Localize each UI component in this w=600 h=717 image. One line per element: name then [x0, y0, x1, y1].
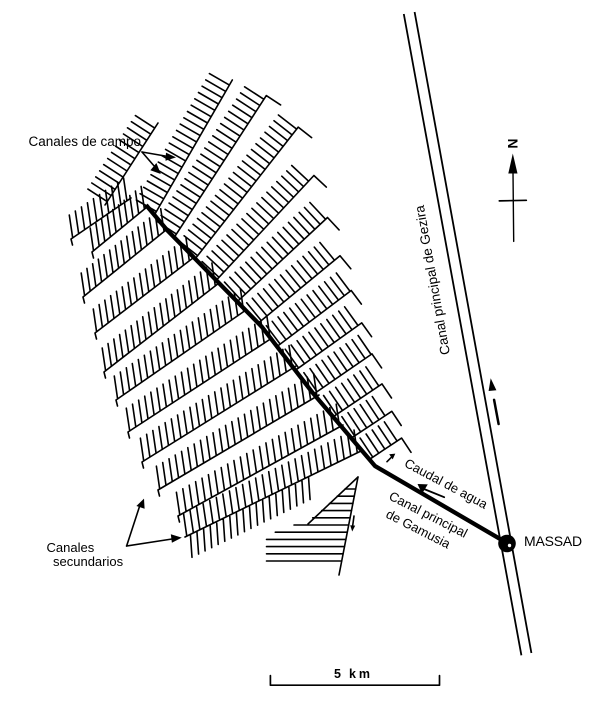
svg-text:Canal principal de Gezira: Canal principal de Gezira	[412, 204, 453, 356]
svg-text:MASSAD: MASSAD	[524, 533, 582, 549]
svg-text:5km: 5km	[334, 667, 370, 681]
svg-text:Canales de campo: Canales de campo	[29, 134, 142, 149]
svg-text:N: N	[505, 138, 521, 148]
svg-text:Canales: Canales	[47, 540, 95, 555]
svg-text:secundarios: secundarios	[53, 554, 124, 569]
